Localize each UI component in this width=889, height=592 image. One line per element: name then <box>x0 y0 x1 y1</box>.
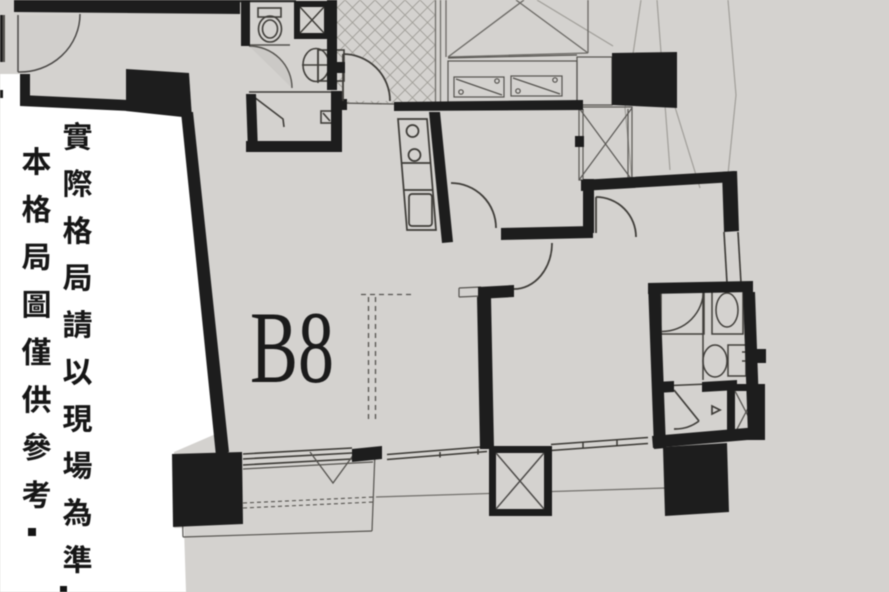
svg-text:B8: B8 <box>250 291 334 405</box>
